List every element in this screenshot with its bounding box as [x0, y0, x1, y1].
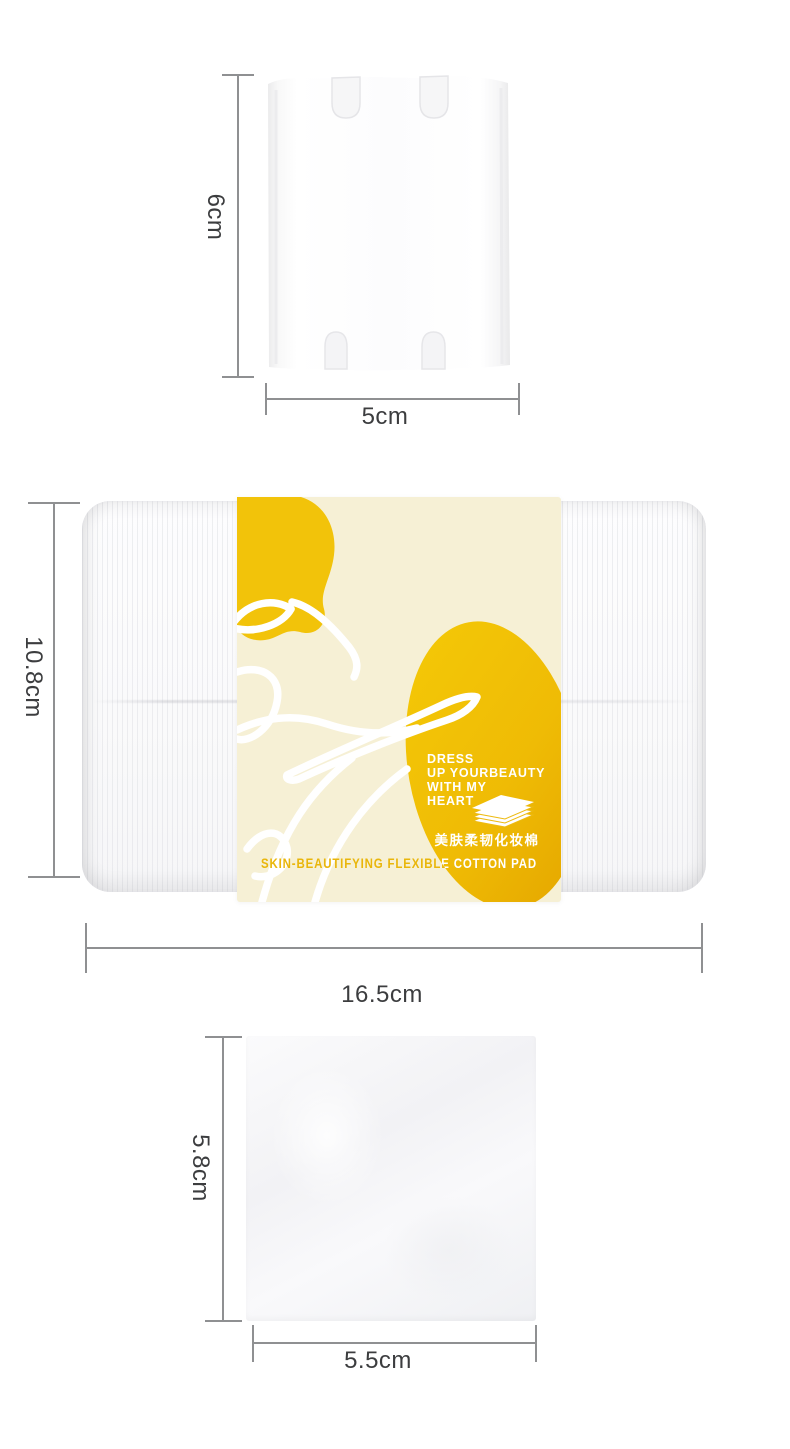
product-size-sheet: 6cm 5cm — [0, 0, 790, 1449]
slogan-line-1: DRESS — [427, 752, 474, 766]
pad-tab-bottom-right — [422, 332, 445, 369]
box-label-band: SKIN-BEAUTIFYING FLEXIBLE COTTON PAD SKI… — [237, 497, 561, 902]
cotton-pad-top-view — [265, 68, 512, 378]
bottom-pad-width-label: 5.5cm — [308, 1347, 448, 1375]
box-width-line — [85, 947, 703, 949]
slogan-line-4: HEART — [427, 794, 474, 808]
pad-right-crease — [501, 88, 502, 364]
slogan-line-3: WITH MY — [427, 780, 487, 794]
cotton-pad-bottom-view — [246, 1036, 536, 1321]
pad-body — [268, 76, 510, 370]
box-width-label: 16.5cm — [312, 981, 452, 1009]
top-pad-height-label: 6cm — [201, 162, 229, 272]
pad-tab-top-left — [332, 77, 360, 118]
chinese-name-text: 美肤柔韧化妆棉 — [435, 832, 540, 848]
box-height-label: 10.8cm — [19, 622, 47, 732]
bottom-pad-height-line — [222, 1036, 224, 1322]
box-height-line — [53, 502, 55, 878]
slogan-line-2: UP YOURBEAUTY — [427, 766, 545, 780]
top-pad-width-line — [265, 398, 520, 400]
pad-tab-bottom-left — [325, 332, 347, 369]
top-pad-height-line — [237, 74, 239, 378]
pad-tab-top-right — [420, 76, 448, 118]
bottom-pad-width-line — [252, 1342, 537, 1344]
bottom-pad-height-label: 5.8cm — [186, 1113, 214, 1223]
top-pad-width-label: 5cm — [315, 403, 455, 431]
